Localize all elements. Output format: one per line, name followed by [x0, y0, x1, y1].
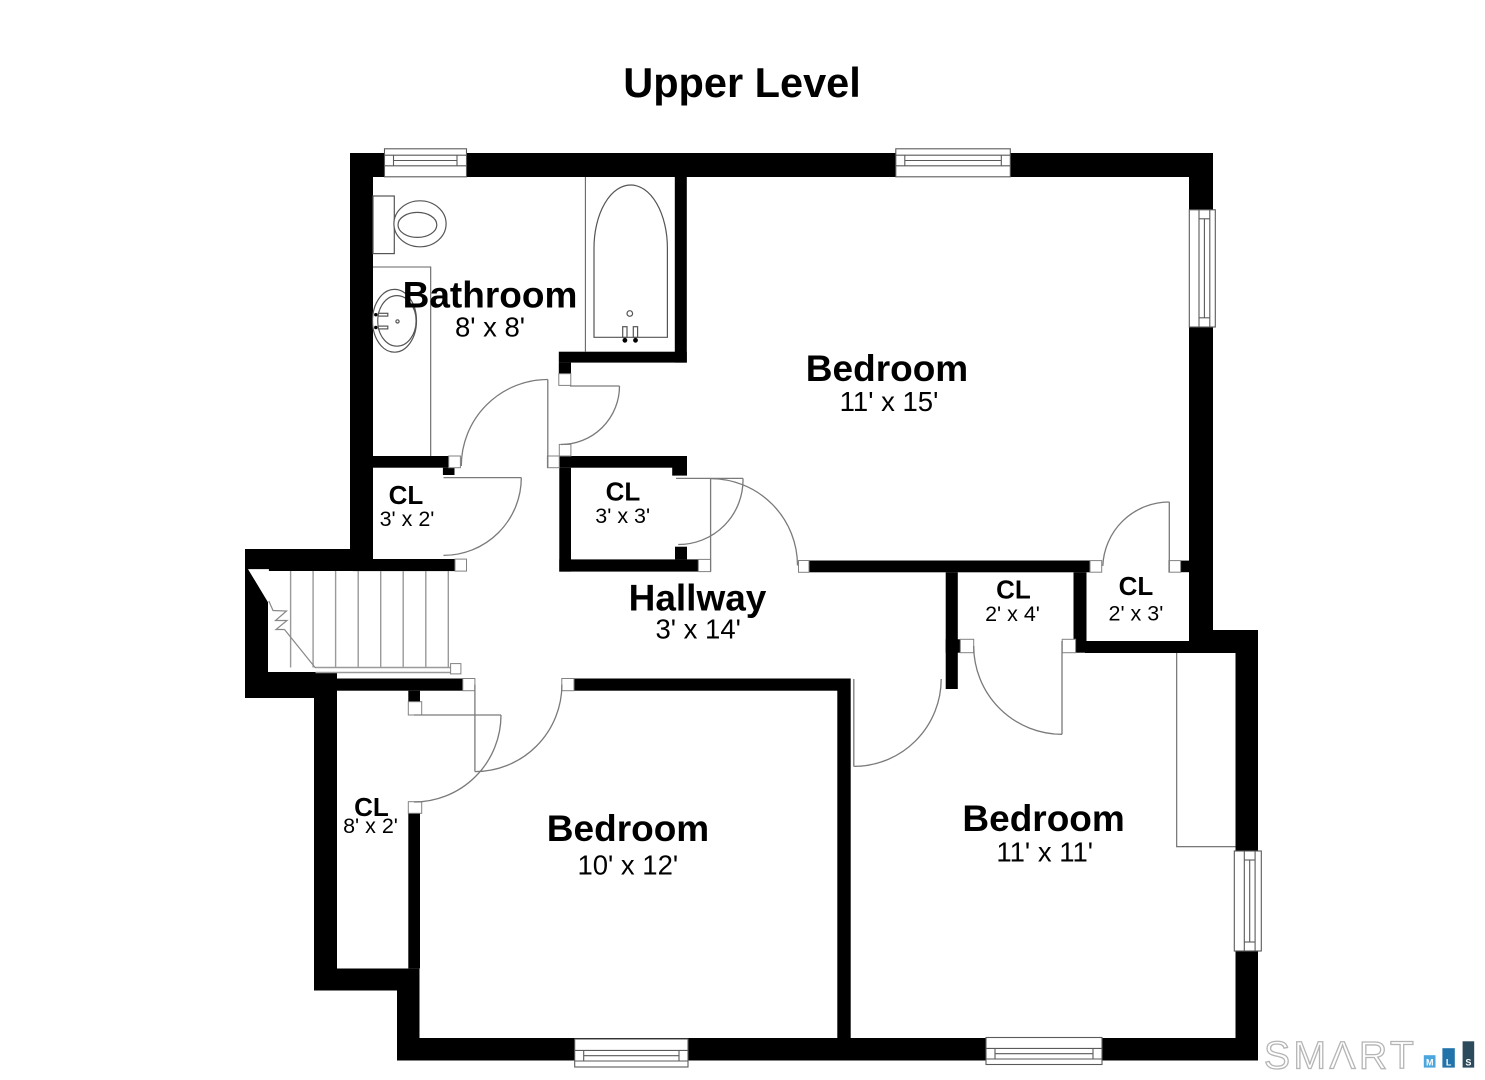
svg-text:Upper Level: Upper Level — [623, 59, 861, 106]
svg-text:Hallway: Hallway — [629, 578, 767, 619]
svg-text:2' x 4': 2' x 4' — [985, 602, 1040, 626]
svg-text:Bedroom: Bedroom — [806, 348, 968, 389]
svg-text:Bathroom: Bathroom — [403, 275, 578, 316]
svg-text:11' x 15': 11' x 15' — [840, 386, 939, 417]
svg-text:8' x 8': 8' x 8' — [455, 312, 525, 343]
svg-text:CL: CL — [389, 480, 424, 510]
svg-text:3' x 3': 3' x 3' — [595, 504, 650, 528]
svg-text:Bedroom: Bedroom — [962, 798, 1124, 839]
svg-text:3' x 2': 3' x 2' — [380, 507, 435, 531]
svg-text:3' x 14': 3' x 14' — [655, 614, 740, 645]
svg-text:10' x 12': 10' x 12' — [577, 849, 678, 880]
svg-text:8' x 2': 8' x 2' — [343, 814, 398, 838]
svg-text:Bedroom: Bedroom — [547, 808, 709, 849]
svg-text:11' x 11': 11' x 11' — [996, 836, 1093, 867]
svg-text:CL: CL — [996, 574, 1031, 604]
svg-text:2' x 3': 2' x 3' — [1108, 602, 1163, 626]
svg-text:CL: CL — [1119, 571, 1154, 601]
svg-text:S: S — [1465, 1057, 1471, 1067]
svg-text:L: L — [1446, 1057, 1452, 1067]
svg-text:CL: CL — [606, 477, 641, 507]
svg-text:M: M — [1426, 1057, 1434, 1067]
svg-text:SMΛRT: SMΛRT — [1264, 1035, 1417, 1078]
